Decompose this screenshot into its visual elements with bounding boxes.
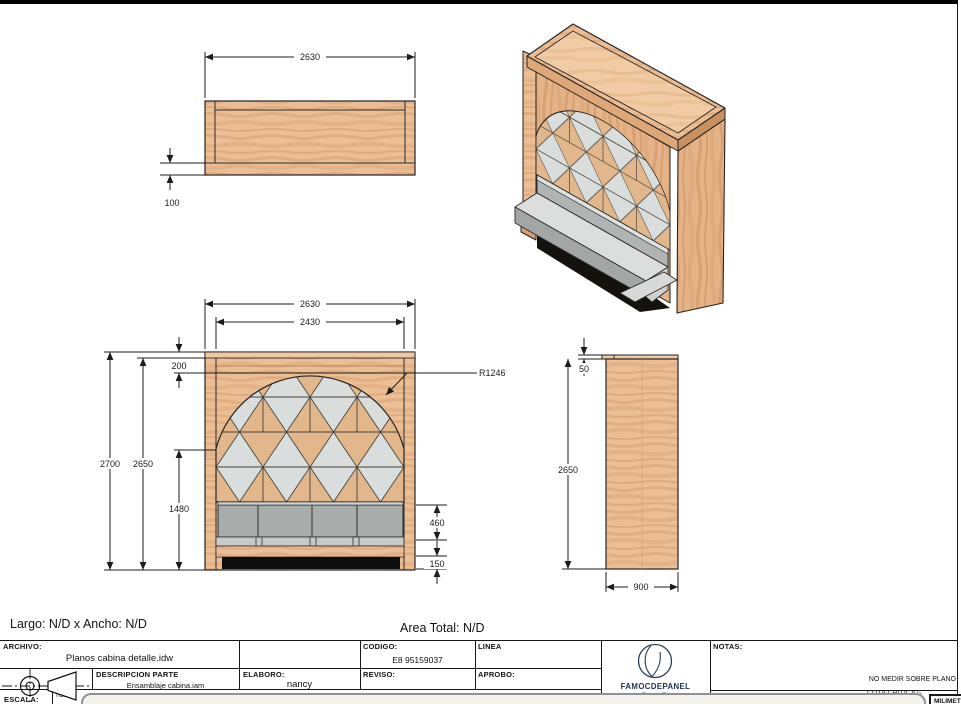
front-seat-back — [218, 505, 403, 537]
size-summary: Largo: N/D x Ancho: N/D — [10, 617, 147, 631]
isometric-view — [515, 24, 725, 313]
dim-front-bench-top: 1480 — [169, 504, 189, 514]
dim-top-thickness: 100 — [164, 198, 179, 208]
area-summary: Area Total: N/D — [400, 621, 485, 635]
reviso-label: REVISO: — [363, 670, 395, 679]
dim-top-width: 2630 — [300, 52, 320, 62]
dim-front-inner-height: 2650 — [133, 459, 153, 469]
logo-swoosh-icon — [645, 646, 652, 677]
units-box: MILIMETROS — [929, 694, 961, 704]
titleblock-top-line — [0, 640, 957, 641]
linea-label: LINEA — [478, 642, 502, 651]
descripcion-value: Ensamblaje cabina.iam — [92, 681, 239, 690]
titleblock-vline-3 — [475, 640, 476, 689]
dim-front-top-offset: 200 — [171, 361, 186, 371]
dim-front-width: 2630 — [300, 299, 320, 309]
notas-label: NOTAS: — [713, 642, 742, 651]
front-wood-band — [216, 546, 404, 557]
projection-symbol — [0, 666, 92, 704]
units-value: MILIMETROS — [934, 698, 961, 704]
projection-cone — [48, 672, 76, 700]
elaboro-value: nancy — [239, 679, 360, 690]
logo-swoosh2-icon — [652, 652, 660, 677]
drawing-sheet: 2630 100 — [0, 0, 961, 704]
iso-right-wall — [677, 119, 725, 313]
dim-side-height: 2650 — [558, 465, 578, 475]
top-border-bar — [0, 0, 958, 4]
archivo-label: ARCHIVO: — [3, 642, 42, 651]
aprobo-label: APROBO: — [478, 670, 515, 679]
elaboro-label: ELABORO: — [243, 670, 285, 679]
drawing-canvas: 2630 100 — [0, 0, 961, 638]
note-no-medir: NO MEDIR SOBRE PLANO — [770, 676, 956, 683]
codigo-label: CODIGO: — [363, 642, 397, 651]
side-view-cap — [602, 355, 678, 359]
top-view-body — [205, 101, 415, 175]
dim-front-seat-back: 460 — [429, 518, 444, 528]
top-view — [205, 101, 415, 175]
brand-name: FAMOCDEPANEL — [621, 682, 691, 691]
front-view — [205, 352, 415, 570]
side-view — [602, 355, 678, 569]
dim-front-base: 150 — [429, 559, 444, 569]
codigo-value: E8 95159037 — [360, 655, 475, 665]
dim-front-total-height: 2700 — [100, 459, 120, 469]
dim-side-lip: 50 — [579, 364, 589, 374]
dim-side-depth: 900 — [633, 582, 648, 592]
descripcion-label: DESCRIPCION PARTE — [96, 670, 178, 679]
foreground-window-edge[interactable] — [81, 693, 926, 704]
archivo-value: Planos cabina detalle.idw — [0, 653, 239, 664]
dim-front-radius: R1246 — [479, 368, 506, 378]
dim-front-inner-width: 2430 — [300, 317, 320, 327]
front-plinth — [222, 557, 400, 569]
